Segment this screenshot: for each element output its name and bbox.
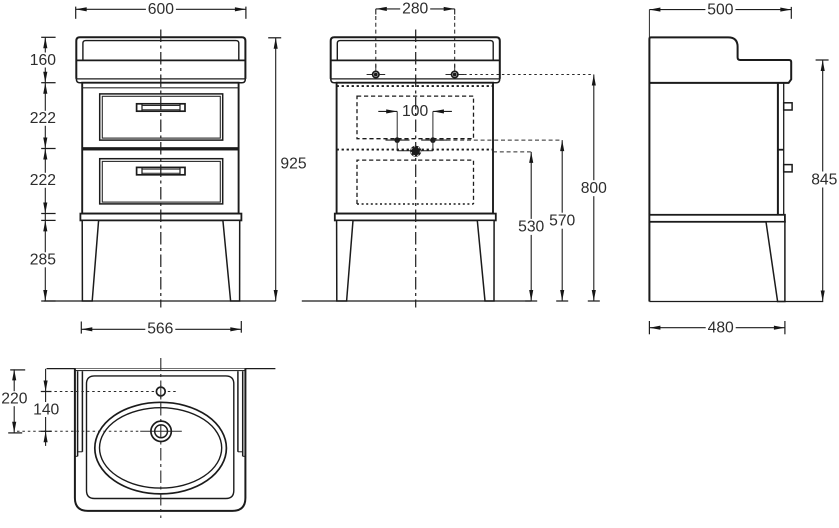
svg-text:600: 600: [148, 1, 174, 18]
svg-text:570: 570: [549, 213, 575, 230]
svg-text:280: 280: [402, 1, 428, 18]
svg-text:480: 480: [708, 320, 734, 337]
svg-text:845: 845: [811, 171, 837, 188]
svg-text:800: 800: [581, 180, 607, 197]
svg-text:500: 500: [707, 1, 733, 18]
svg-text:160: 160: [30, 52, 56, 69]
svg-text:925: 925: [280, 155, 306, 172]
svg-text:566: 566: [147, 321, 173, 338]
svg-text:222: 222: [30, 110, 56, 127]
svg-text:285: 285: [30, 252, 56, 269]
svg-text:530: 530: [518, 219, 544, 236]
svg-text:140: 140: [33, 401, 59, 418]
svg-text:222: 222: [30, 172, 56, 189]
svg-text:220: 220: [1, 391, 27, 408]
